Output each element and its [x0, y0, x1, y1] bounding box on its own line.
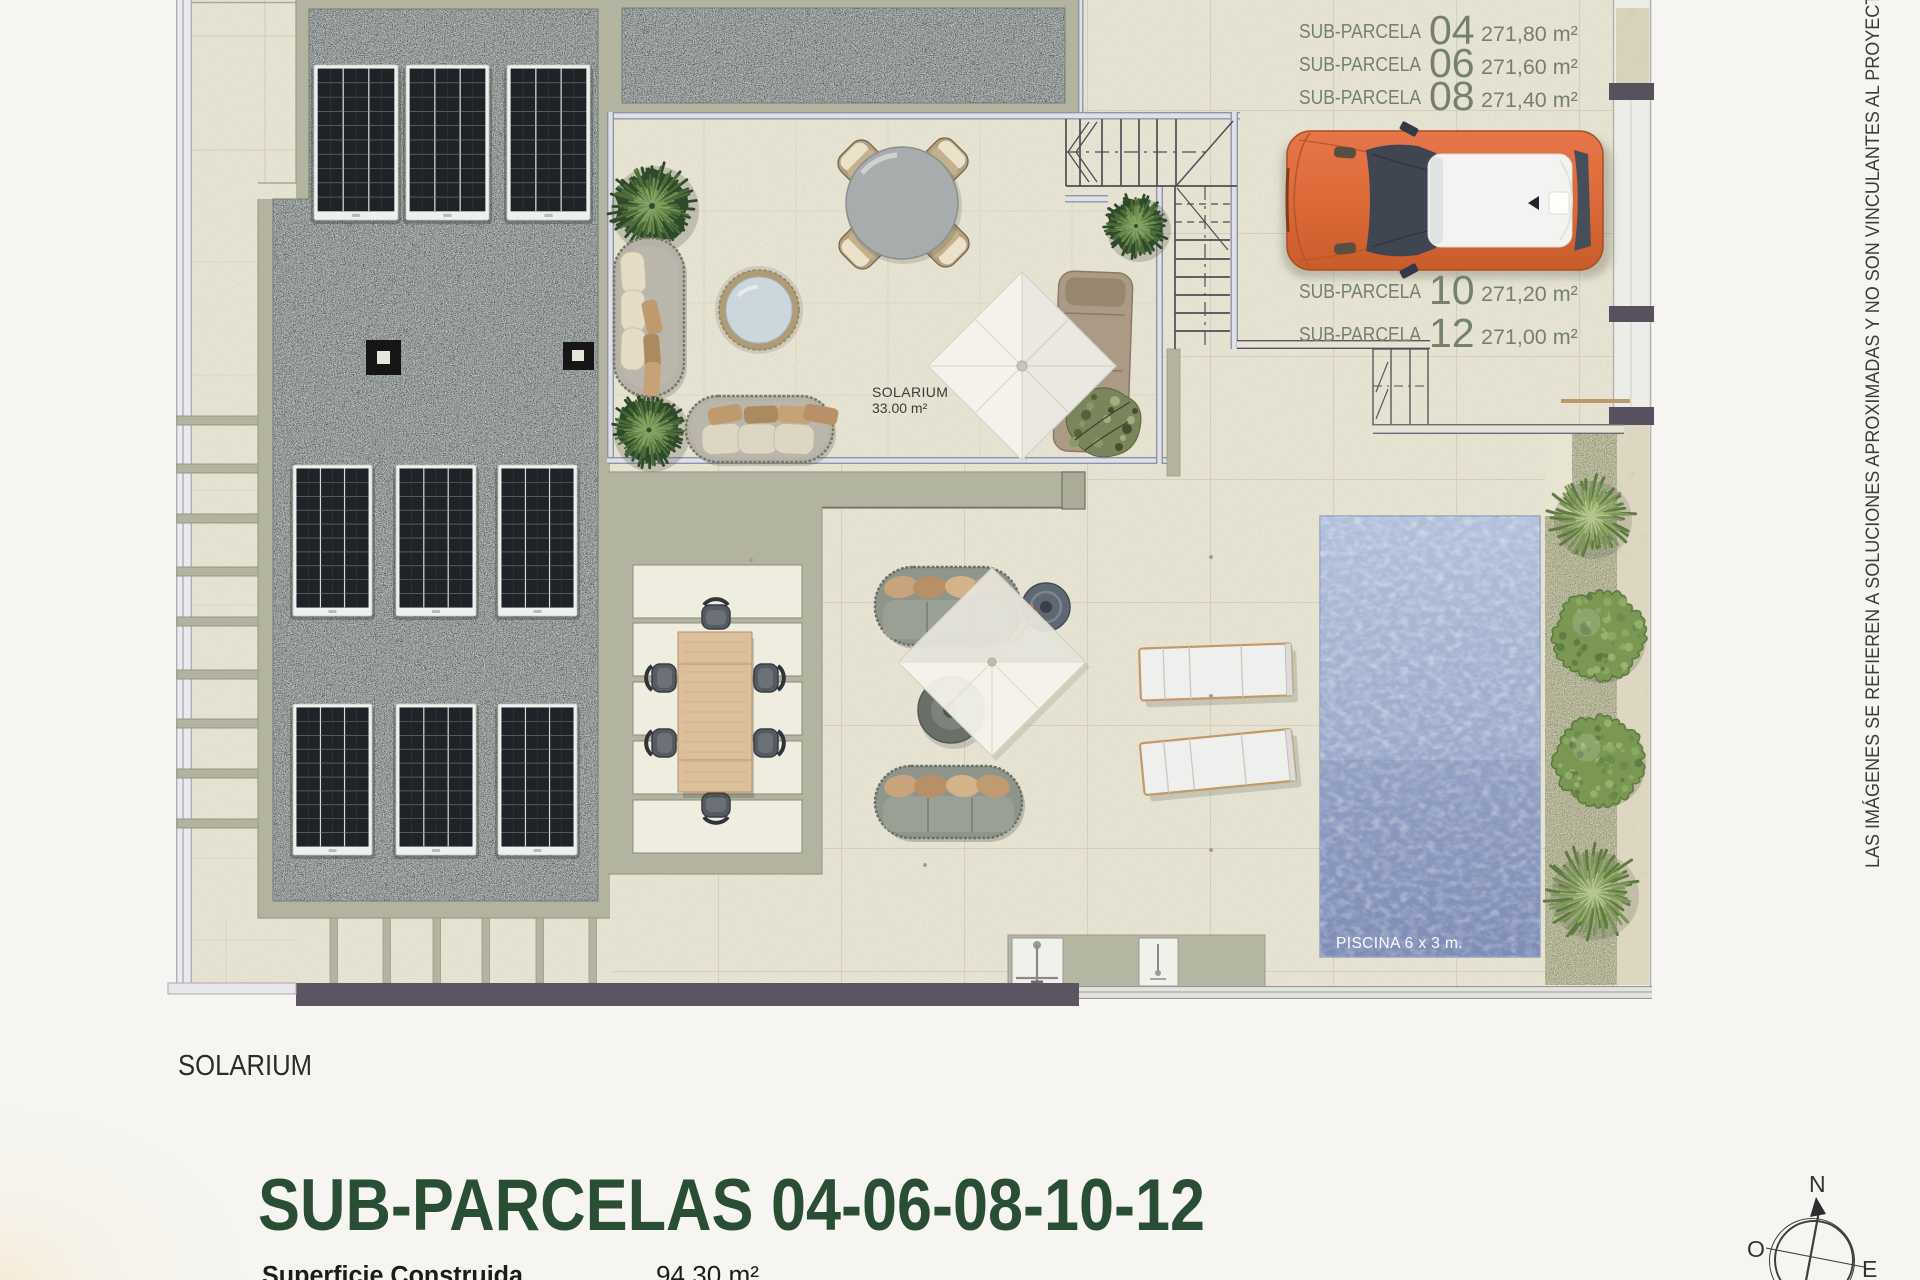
svg-text:271,40 m²: 271,40 m²	[1481, 88, 1578, 112]
svg-text:Superficie Construida: Superficie Construida	[262, 1262, 524, 1280]
svg-text:PISCINA 6 x 3 m.: PISCINA 6 x 3 m.	[1336, 935, 1463, 952]
svg-text:E: E	[1862, 1256, 1877, 1280]
svg-text:SUB-PARCELA: SUB-PARCELA	[1299, 87, 1422, 109]
svg-text:SUB-PARCELA: SUB-PARCELA	[1299, 281, 1422, 303]
svg-text:SUB-PARCELAS 04-06-08-10-12: SUB-PARCELAS 04-06-08-10-12	[258, 1165, 1205, 1246]
svg-text:94,30 m²: 94,30 m²	[656, 1262, 759, 1280]
svg-text:SUB-PARCELA: SUB-PARCELA	[1299, 21, 1422, 43]
svg-text:N: N	[1809, 1171, 1826, 1197]
svg-text:271,60 m²: 271,60 m²	[1481, 55, 1578, 79]
svg-text:LAS IMÁGENES SE REFIEREN A SOL: LAS IMÁGENES SE REFIEREN A SOLUCIONES AP…	[1861, 0, 1884, 868]
svg-text:O: O	[1747, 1236, 1765, 1262]
svg-text:33.00 m²: 33.00 m²	[872, 400, 928, 416]
svg-text:271,00 m²: 271,00 m²	[1481, 325, 1578, 349]
svg-text:271,20 m²: 271,20 m²	[1481, 282, 1578, 306]
svg-text:SUB-PARCELA: SUB-PARCELA	[1299, 54, 1422, 76]
svg-text:271,80 m²: 271,80 m²	[1481, 22, 1578, 46]
svg-text:SUB-PARCELA: SUB-PARCELA	[1299, 324, 1422, 346]
svg-text:10: 10	[1429, 267, 1475, 313]
svg-text:SOLARIUM: SOLARIUM	[178, 1050, 312, 1082]
svg-text:SOLARIUM: SOLARIUM	[872, 384, 948, 400]
svg-text:08: 08	[1429, 73, 1475, 119]
svg-text:12: 12	[1429, 310, 1475, 356]
